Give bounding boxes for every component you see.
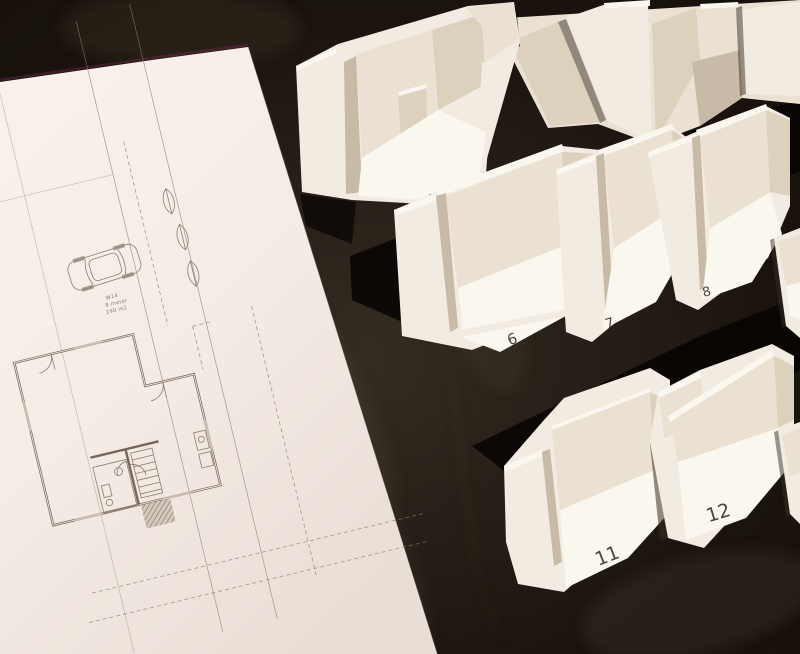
face-back-wall — [738, 2, 800, 96]
face-roof-slope — [766, 110, 790, 196]
photo-scene: W14 8 meter 190 m2 — [0, 0, 800, 654]
scene-canvas: W14 8 meter 190 m2 — [0, 0, 800, 654]
